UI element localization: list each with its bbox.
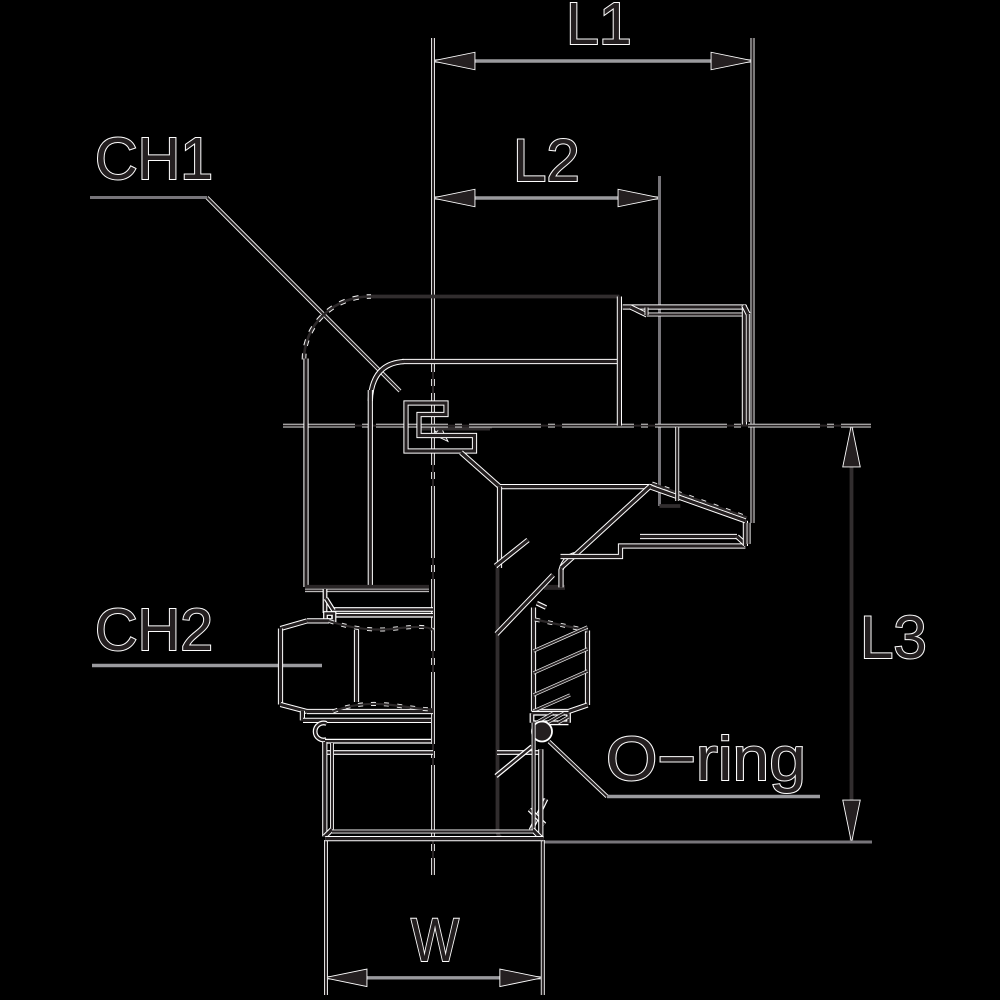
svg-text:L1: L1 (566, 0, 632, 57)
svg-text:O−ring: O−ring (606, 725, 806, 794)
svg-text:W: W (411, 906, 459, 974)
svg-text:CH2: CH2 (95, 597, 213, 663)
svg-text:L2: L2 (513, 127, 580, 194)
svg-text:CH1: CH1 (95, 126, 213, 192)
svg-text:L3: L3 (860, 604, 927, 671)
